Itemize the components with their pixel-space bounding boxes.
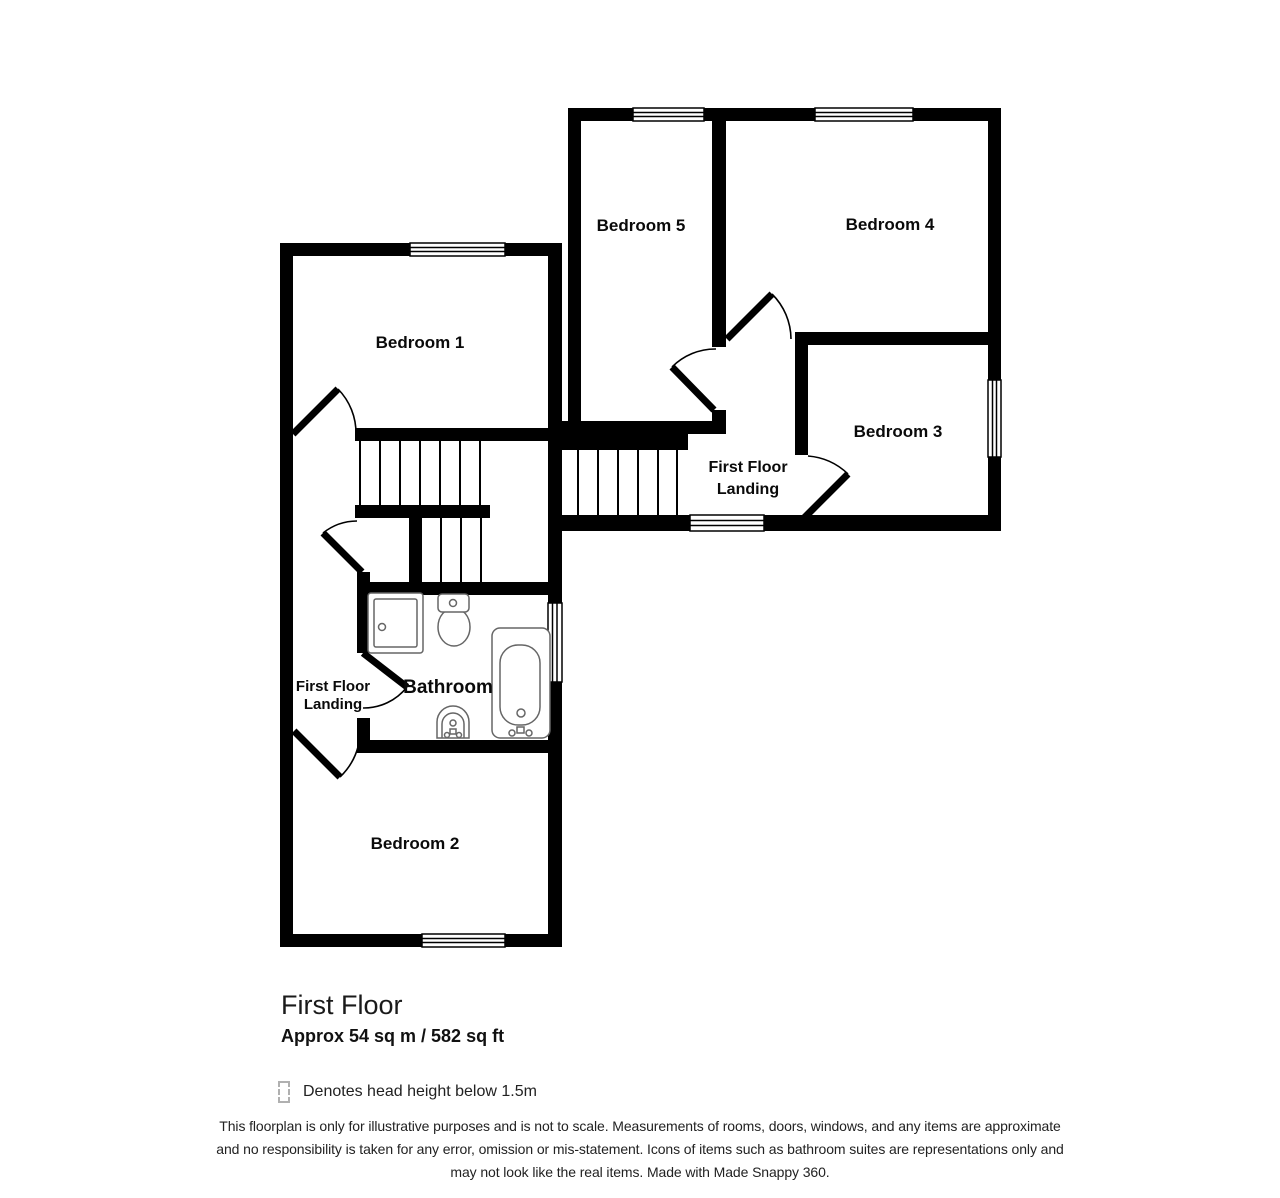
landing-right-line2: Landing: [717, 481, 779, 498]
door-bedroom-3: [802, 456, 848, 520]
floor-title: First Floor: [281, 990, 403, 1021]
head-height-legend-icon: [278, 1081, 290, 1103]
wall-segment: [712, 410, 726, 425]
disclaimer-line: and no responsibility is taken for any e…: [0, 1138, 1280, 1161]
head-height-legend-label: Denotes head height below 1.5m: [303, 1083, 537, 1101]
window: [633, 108, 704, 121]
door-bedroom-5: [672, 349, 716, 410]
window: [815, 108, 913, 121]
landing-right-line1: First Floor: [708, 459, 787, 476]
room-label-bedroom-2: Bedroom 2: [371, 834, 460, 853]
room-label-bathroom: Bathroom: [403, 677, 493, 698]
floorplan-drawing: Bedroom 5 Bedroom 4 Bedroom 3 Bedroom 1 …: [0, 0, 1280, 1198]
wall-segment: [712, 108, 726, 347]
door-landing-left: [323, 521, 362, 572]
wall-segment: [280, 243, 293, 947]
room-labels: Bedroom 5 Bedroom 4 Bedroom 3 Bedroom 1 …: [296, 215, 942, 853]
window: [988, 380, 1001, 457]
landing-left-line2: Landing: [304, 696, 362, 713]
room-label-landing-left: First Floor Landing: [296, 678, 370, 713]
toilet-icon: [438, 594, 470, 646]
door-bedroom-4: [727, 294, 791, 339]
window: [422, 934, 505, 947]
room-label-bedroom-5: Bedroom 5: [597, 216, 686, 235]
wall-segment: [568, 108, 581, 421]
wall-segment: [988, 457, 1001, 531]
disclaimer: This floorplan is only for illustrative …: [0, 1115, 1280, 1184]
disclaimer-line: may not look like the real items. Made w…: [0, 1161, 1280, 1184]
door-bedroom-2: [294, 731, 358, 777]
wall-segment: [795, 332, 1001, 345]
room-label-bedroom-3: Bedroom 3: [854, 422, 943, 441]
wall-segment: [548, 433, 688, 450]
door-bedroom-1: [293, 389, 356, 434]
stair-treads-upper-run: [360, 441, 480, 505]
wall-segment: [355, 428, 562, 441]
room-label-bedroom-4: Bedroom 4: [846, 215, 935, 234]
stair-treads-right-run: [558, 450, 677, 515]
sink-icon: [437, 706, 469, 738]
room-label-landing-right: First Floor Landing: [708, 459, 787, 498]
wall-segment: [913, 108, 1001, 121]
stair-treads-lower-run: [441, 518, 481, 582]
bathtub-icon: [492, 628, 550, 738]
shower-icon: [368, 593, 423, 653]
room-label-bedroom-1: Bedroom 1: [376, 333, 465, 352]
wall-segment: [795, 345, 808, 455]
floorplan-page: Bedroom 5 Bedroom 4 Bedroom 3 Bedroom 1 …: [0, 0, 1280, 1198]
wall-segment: [355, 505, 490, 518]
disclaimer-line: This floorplan is only for illustrative …: [0, 1115, 1280, 1138]
wall-segment: [764, 515, 1001, 531]
wall-segment: [280, 934, 422, 947]
wall-segment: [548, 515, 690, 531]
landing-left-line1: First Floor: [296, 678, 370, 695]
window: [690, 515, 764, 531]
window: [410, 243, 505, 256]
wall-segment: [548, 421, 726, 434]
floor-area-text: Approx 54 sq m / 582 sq ft: [281, 1026, 504, 1047]
wall-segment: [358, 740, 562, 753]
wall-segment: [280, 243, 410, 256]
bathroom-fixtures: [368, 593, 550, 738]
